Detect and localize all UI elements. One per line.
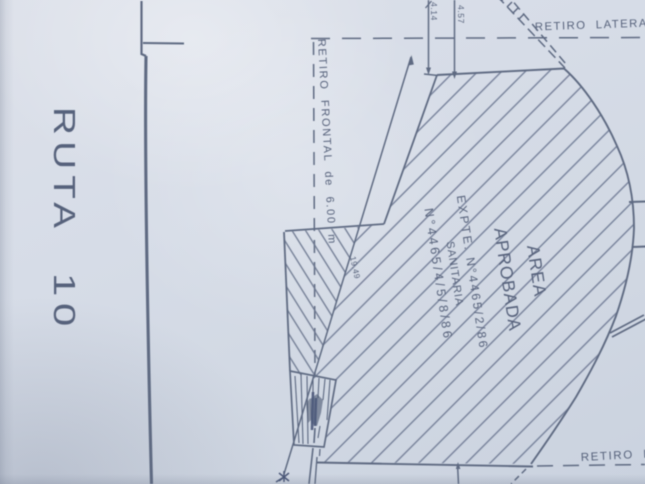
svg-text:RETIRO FRONTAL de 6.00 m: RETIRO FRONTAL de 6.00 m — [315, 39, 338, 246]
svg-text:4.14: 4.14 — [429, 2, 439, 21]
svg-text:4.57: 4.57 — [456, 5, 466, 24]
svg-text:RETIRO LATERAL: RETIRO LATERAL — [535, 17, 645, 33]
svg-text:RETIRO L: RETIRO L — [581, 448, 645, 464]
svg-text:10: 10 — [47, 273, 82, 333]
svg-text:RUTA: RUTA — [47, 107, 81, 234]
